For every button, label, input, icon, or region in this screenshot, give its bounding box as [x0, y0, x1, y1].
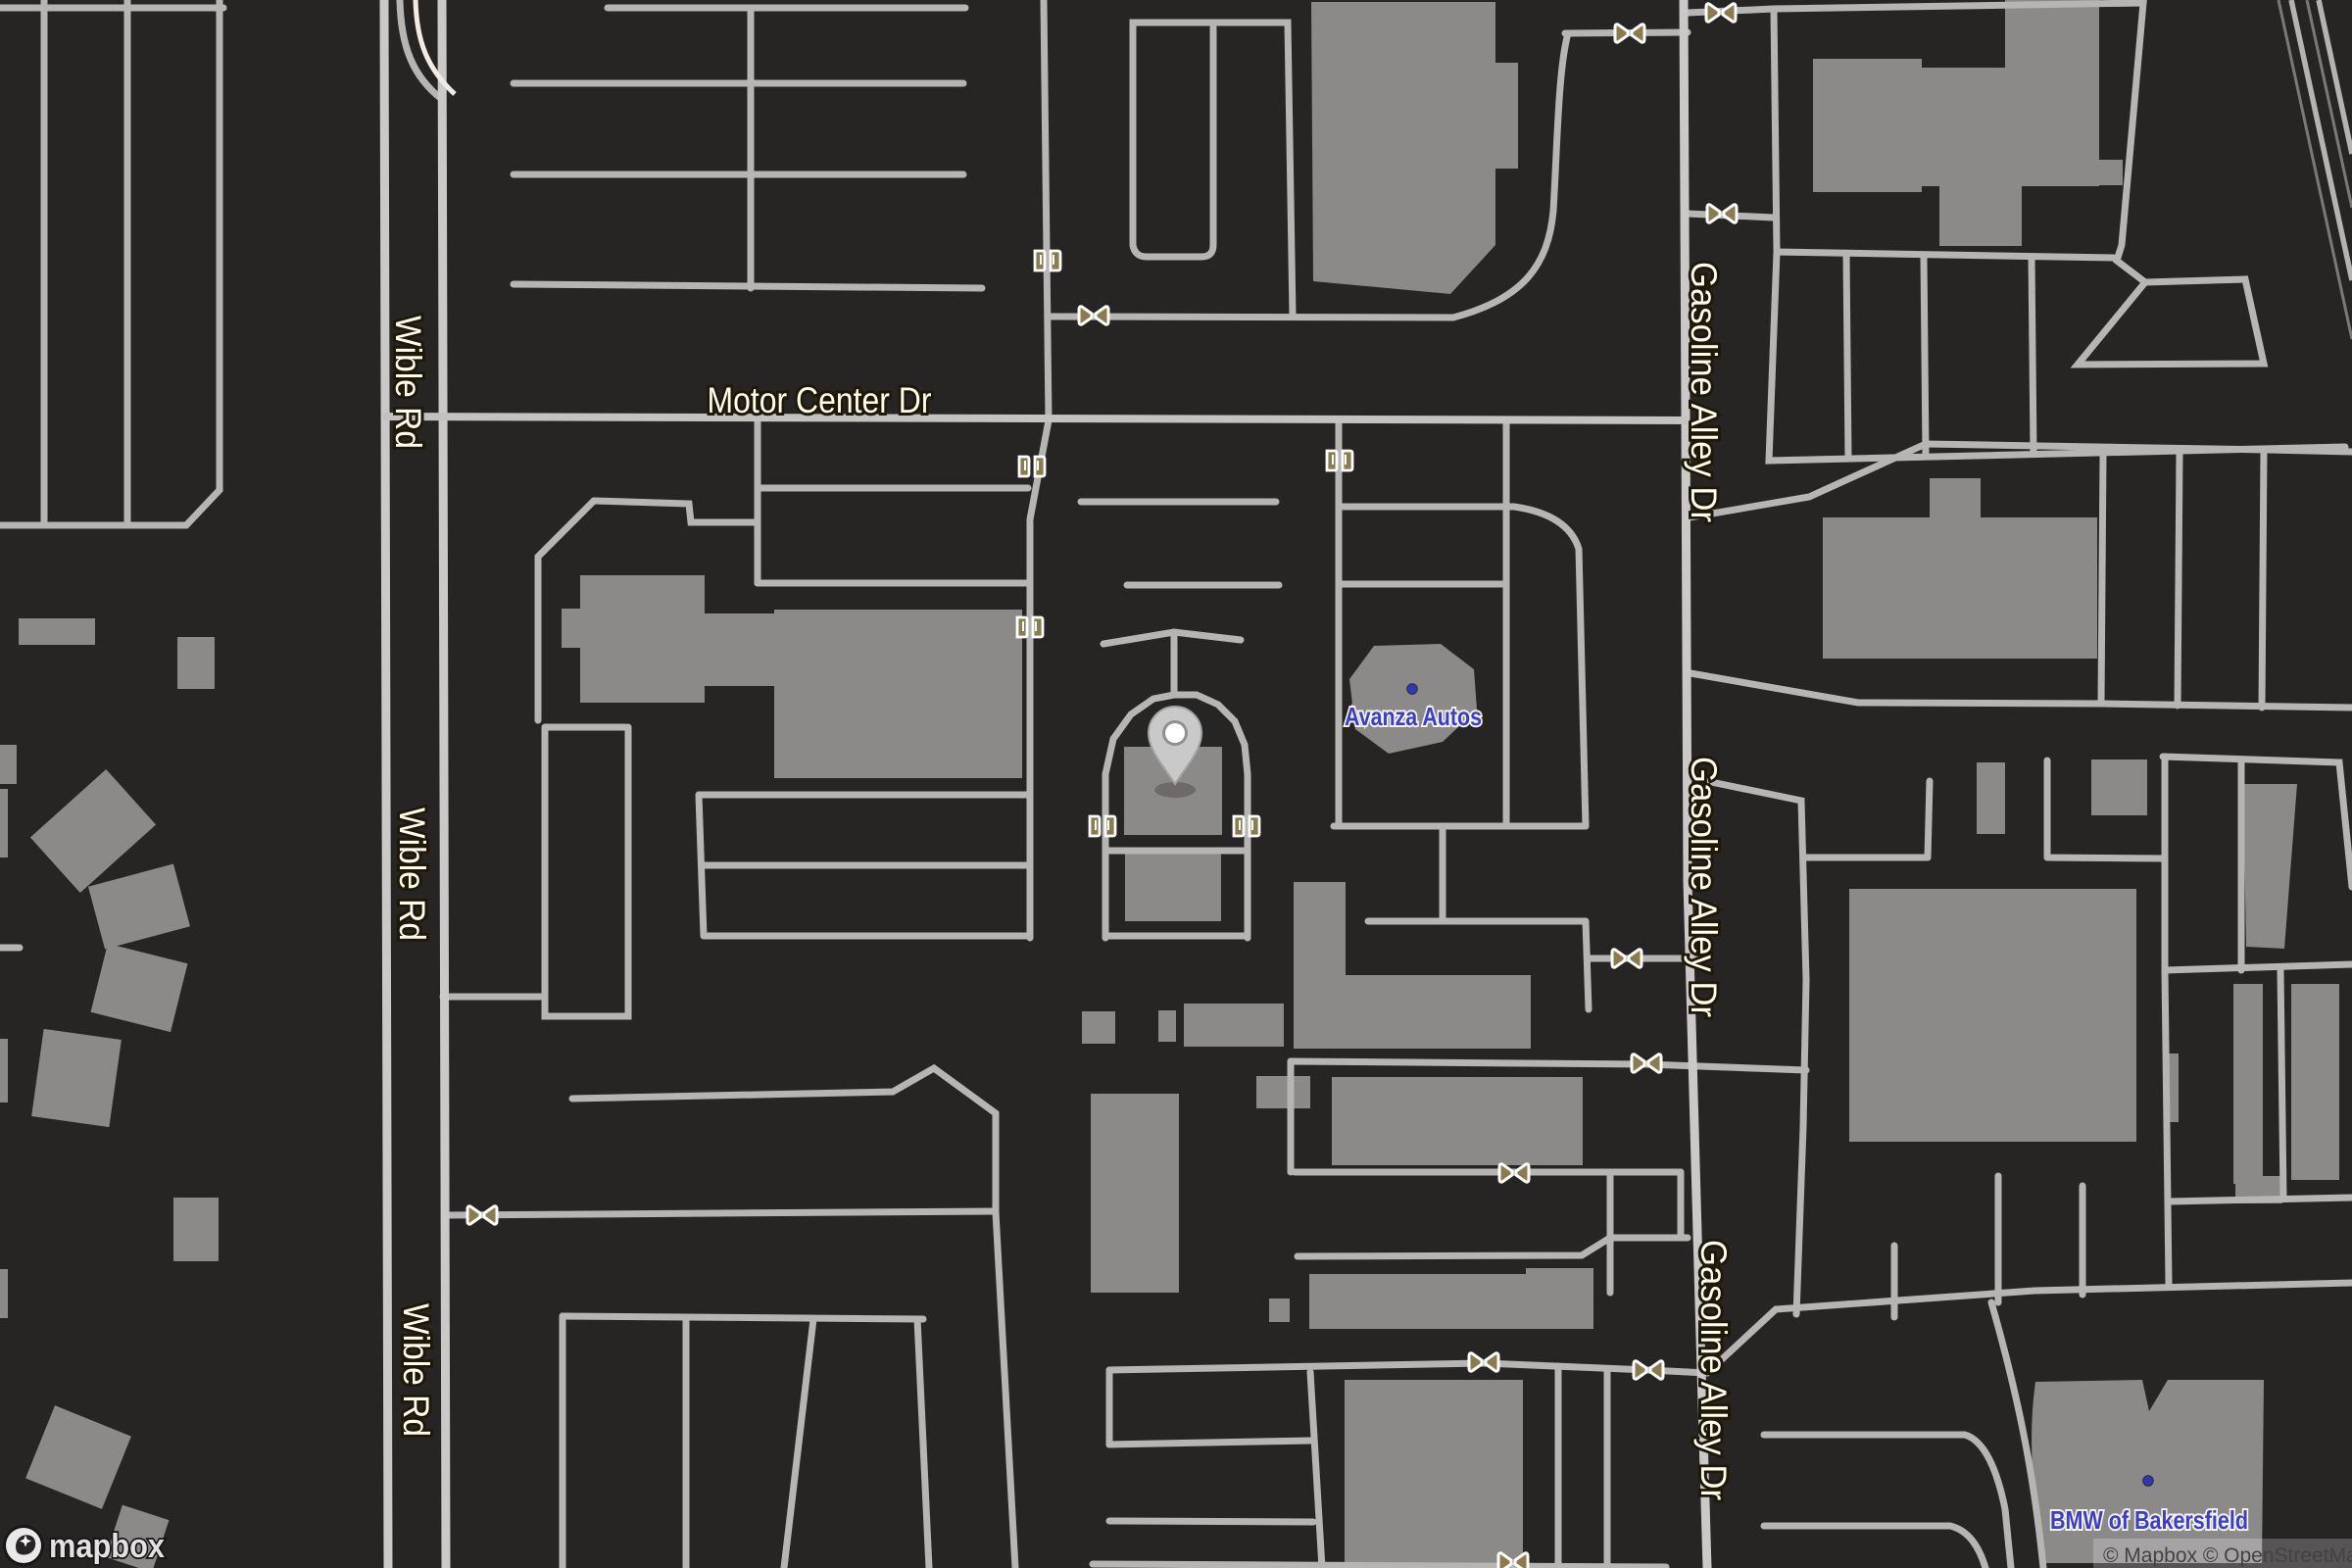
svg-text:Gasoline Alley Dr: Gasoline Alley Dr — [1684, 757, 1724, 1017]
svg-text:mapbox: mapbox — [49, 1528, 165, 1565]
svg-text:Wible Rd: Wible Rd — [396, 1303, 436, 1437]
svg-text:Gasoline Alley Dr: Gasoline Alley Dr — [1684, 262, 1724, 522]
svg-text:Motor Center Dr: Motor Center Dr — [708, 380, 932, 420]
svg-text:Wible Rd: Wible Rd — [392, 808, 432, 941]
svg-text:Gasoline Alley Dr: Gasoline Alley Dr — [1693, 1240, 1734, 1500]
svg-text:Wible Rd: Wible Rd — [388, 316, 428, 449]
svg-text:BMW of Bakersfield: BMW of Bakersfield — [2050, 1505, 2248, 1535]
svg-text:© Mapbox © OpenStreetMap: © Mapbox © OpenStreetMap — [2103, 1544, 2352, 1567]
svg-text:Avanza Autos: Avanza Autos — [1345, 702, 1482, 731]
